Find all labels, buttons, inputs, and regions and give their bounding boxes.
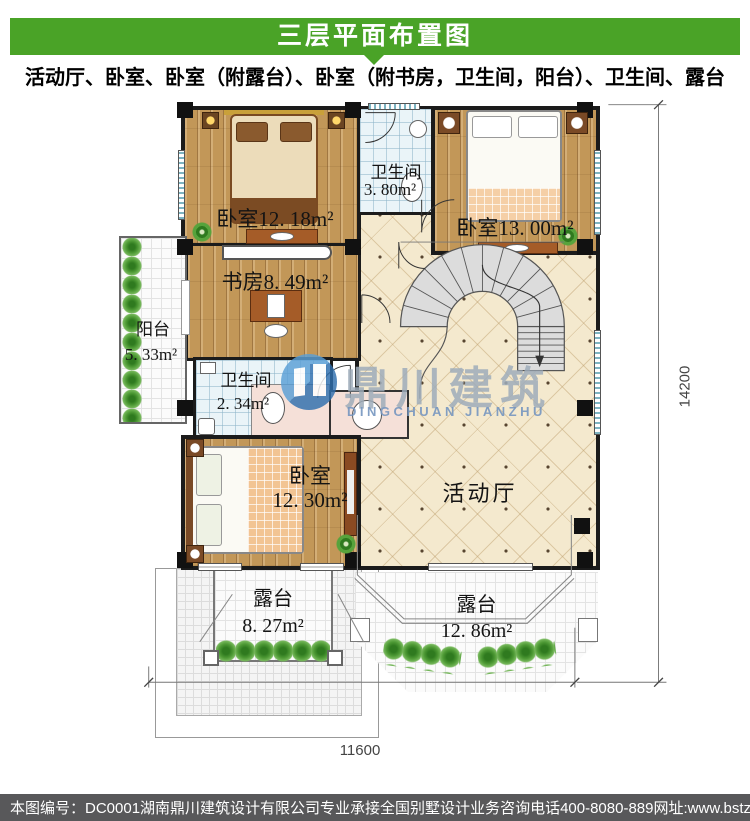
watermark-en: DINGCHUAN JIANZHU bbox=[347, 404, 546, 419]
company-name: 湖南鼎川建筑设计有限公司专业承接全国别墅设计业务 bbox=[140, 797, 500, 818]
dingchuan-logo-icon bbox=[281, 354, 337, 410]
footer-bar: 本图编号：DC0001 湖南鼎川建筑设计有限公司专业承接全国别墅设计业务 咨询电… bbox=[0, 794, 750, 821]
phone-number: 咨询电话400-8080-889 bbox=[500, 797, 653, 818]
dimension-width: 11600 bbox=[320, 742, 400, 759]
plan-linework bbox=[0, 95, 750, 795]
sheet-number: 本图编号：DC0001 bbox=[10, 797, 140, 818]
website: 网址:www.bstzcs.com bbox=[653, 797, 750, 818]
terrace-outline bbox=[200, 515, 574, 642]
page-title: 三层平面布置图 bbox=[10, 18, 740, 55]
dimension-height: 14200 bbox=[677, 357, 694, 417]
floor-plan-page: 三层平面布置图 活动厅、卧室、卧室（附露台）、卧室（附书房，卫生间，阳台）、卫生… bbox=[0, 0, 750, 821]
room-list-subtitle: 活动厅、卧室、卧室（附露台）、卧室（附书房，卫生间，阳台）、卫生间、露台 bbox=[0, 61, 750, 90]
